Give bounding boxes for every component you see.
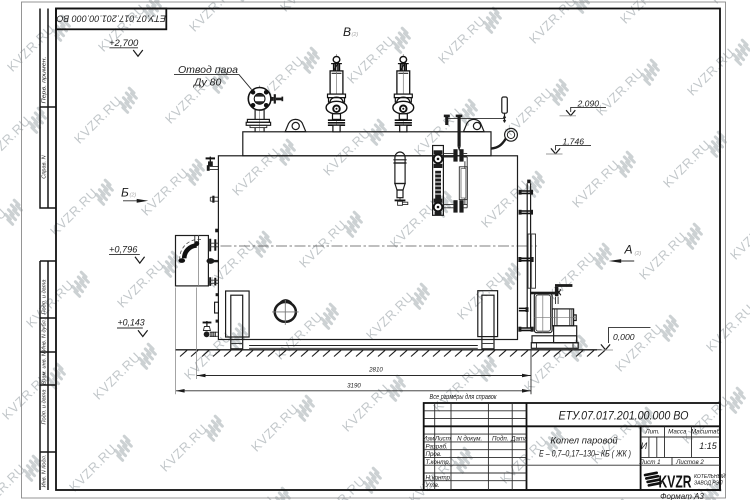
svg-text:(2): (2) <box>352 32 359 38</box>
svg-text:Пров.: Пров. <box>426 451 442 458</box>
svg-text:Справ. N: Справ. N <box>42 154 48 178</box>
svg-text:Н.контр.: Н.контр. <box>426 474 452 481</box>
svg-text:Взам. инв. N: Взам. инв. N <box>42 351 48 385</box>
svg-text:Лист 1: Лист 1 <box>638 459 660 466</box>
svg-text:Котел паровой: Котел паровой <box>550 435 618 446</box>
svg-text:Лист: Лист <box>434 436 451 443</box>
svg-text:+0,143: +0,143 <box>118 317 145 327</box>
svg-text:А: А <box>624 243 633 257</box>
svg-text:ЕТУ.07.017.201.00.000 ВО: ЕТУ.07.017.201.00.000 ВО <box>56 14 165 24</box>
svg-text:2810: 2810 <box>368 366 383 373</box>
svg-text:ЕТУ.07.017.201.00.000 ВО: ЕТУ.07.017.201.00.000 ВО <box>559 409 689 422</box>
svg-text:Е – 0,7–0,17–130– КБ ( ЖК ): Е – 0,7–0,17–130– КБ ( ЖК ) <box>539 448 631 459</box>
svg-text:2,090: 2,090 <box>577 98 600 108</box>
svg-text:KVZR: KVZR <box>659 472 692 492</box>
svg-text:(2): (2) <box>130 193 137 199</box>
svg-text:Подп. и дата: Подп. и дата <box>42 389 48 424</box>
svg-text:Ду 80: Ду 80 <box>193 76 222 88</box>
svg-text:Отвод пара: Отвод пара <box>178 64 238 76</box>
svg-text:1,746: 1,746 <box>563 137 585 147</box>
svg-text:Лит.: Лит. <box>644 429 660 436</box>
svg-text:Масштаб: Масштаб <box>691 429 720 436</box>
svg-text:Листов 2: Листов 2 <box>675 459 704 466</box>
svg-text:ЗАВОД РЭП: ЗАВОД РЭП <box>694 481 723 487</box>
svg-text:0,000: 0,000 <box>613 332 635 342</box>
svg-text:1:15: 1:15 <box>699 441 718 451</box>
svg-text:Подп.: Подп. <box>492 436 508 443</box>
svg-text:Изм.: Изм. <box>423 436 436 443</box>
svg-text:Инв. N подл.: Инв. N подл. <box>42 455 48 488</box>
svg-text:Масса: Масса <box>668 429 687 436</box>
svg-text:И: И <box>641 441 648 451</box>
svg-text:Все размеры для справок: Все размеры для справок <box>430 392 497 401</box>
svg-text:Разраб.: Разраб. <box>426 443 448 450</box>
svg-text:Инв. N дубл.: Инв. N дубл. <box>42 319 48 351</box>
svg-text:Дата: Дата <box>510 436 528 443</box>
svg-text:Б: Б <box>121 186 129 200</box>
svg-text:(2): (2) <box>635 251 642 257</box>
svg-text:В: В <box>343 25 351 39</box>
svg-text:КОТЕЛЬНЫЙ: КОТЕЛЬНЫЙ <box>694 472 726 480</box>
svg-text:Подп. и дата: Подп. и дата <box>42 279 48 314</box>
svg-text:3190: 3190 <box>347 383 361 390</box>
svg-text:Перв. примен.: Перв. примен. <box>42 57 48 104</box>
svg-text:+0,796: +0,796 <box>109 245 138 255</box>
svg-text:Утв.: Утв. <box>425 482 440 489</box>
svg-text:Формат А3: Формат А3 <box>660 492 704 500</box>
svg-text:Т.контр.: Т.контр. <box>426 459 451 466</box>
svg-text:N докум.: N докум. <box>457 436 482 443</box>
